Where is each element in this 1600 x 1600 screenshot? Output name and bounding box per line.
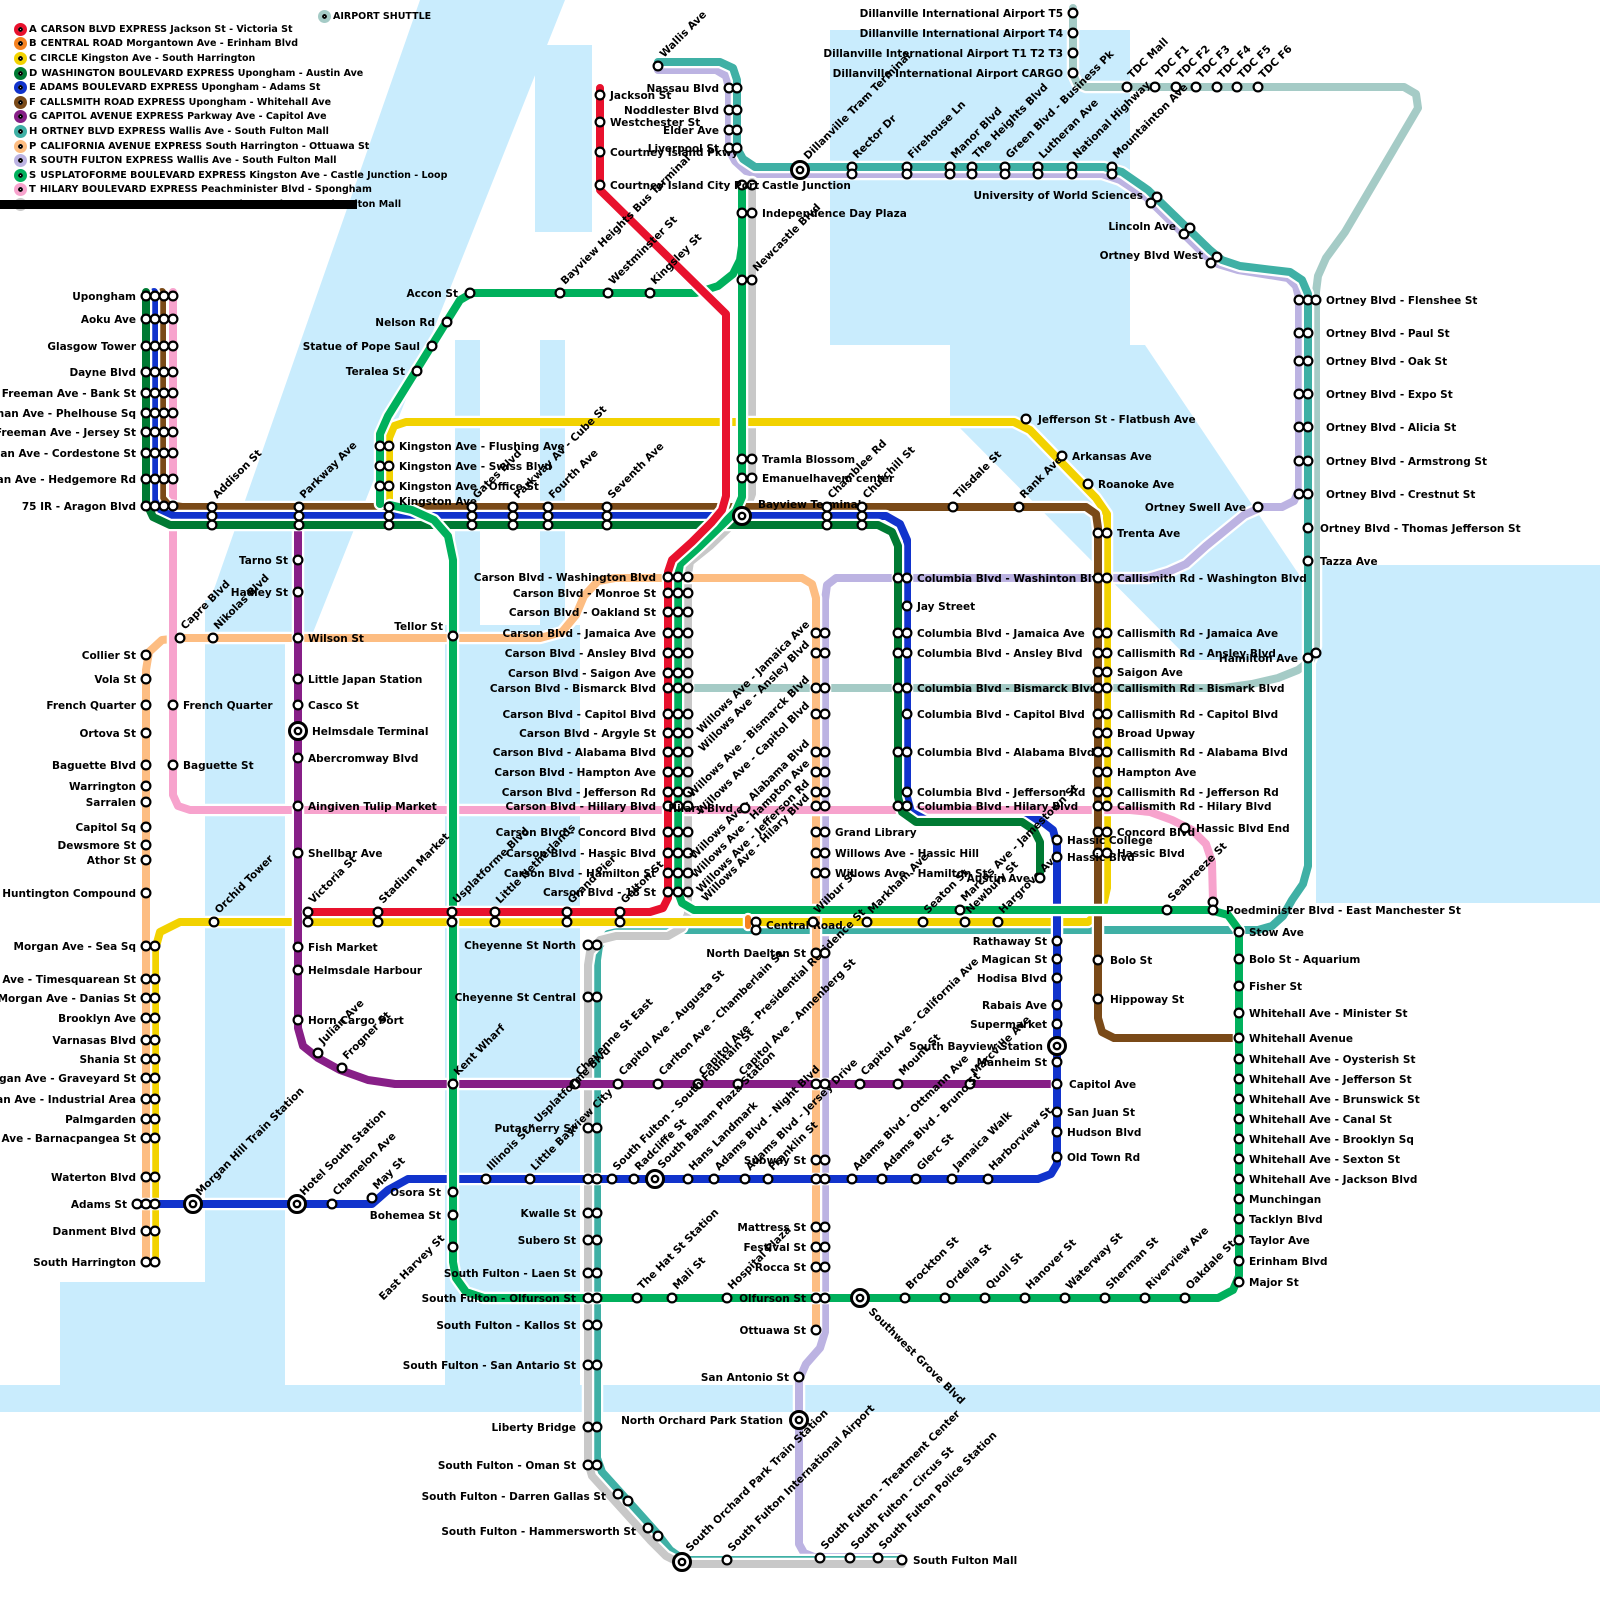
station-label-seventh-ave: Seventh Ave (606, 440, 667, 501)
station-south-fulton-oman-st[interactable]: South Fulton - Oman St (438, 1460, 602, 1472)
station-label-danment-blvd: Danment Blvd (53, 1226, 136, 1238)
station-whitehall-ave-jackson-blvd[interactable]: Whitehall Ave - Jackson Blvd (1235, 1174, 1418, 1186)
station-san-juan-st[interactable]: San Juan St (1053, 1107, 1135, 1119)
station-san-antonio-st[interactable]: San Antonio St (701, 1372, 804, 1384)
station-label-little-japan-station: Little Japan Station (308, 674, 422, 686)
station-label-whitehall-ave-jefferson-st: Whitehall Ave - Jefferson St (1249, 1074, 1412, 1086)
station-hassic-college[interactable]: Hassic College (1053, 835, 1153, 847)
station-label-tazza-ave: Tazza Ave (1320, 556, 1378, 568)
station-baguette-blvd[interactable]: Baguette Blvd (52, 760, 150, 772)
station-label-hospital-plaza: Hospital Plaza (726, 1224, 794, 1292)
station-south-fulton-hammersworth-st[interactable]: South Fulton - Hammersworth St (441, 1524, 662, 1541)
water (535, 45, 592, 232)
station-label-noddlester-blvd: Noddlester Blvd (624, 105, 719, 117)
station-kingston-ave-office-st[interactable]: Kingston Ave - Office St (376, 481, 539, 493)
station-saigon-ave[interactable]: Saigon Ave (1094, 667, 1183, 679)
station-shania-st[interactable]: Shania St (79, 1054, 159, 1066)
station-label-major-st: Major St (1249, 1277, 1299, 1289)
station-old-town-rd[interactable]: Old Town Rd (1053, 1152, 1141, 1164)
station-label-waterton-blvd: Waterton Blvd (51, 1172, 136, 1184)
station-callismith-rd-jamaica-ave[interactable]: Callismith Rd - Jamaica Ave (1094, 628, 1279, 640)
legend-bullet-icon-B (14, 37, 27, 50)
legend-item-S: SUSPLATOFORME BOULEVARD EXPRESS Kingston… (14, 168, 447, 183)
station-shellbar-ave[interactable]: Shellbar Ave (294, 848, 383, 860)
legend-item-C: CCIRCLE Kingston Ave - South Harrington (14, 51, 447, 66)
station-label-osora-st: Osora St (390, 1187, 441, 1199)
station-kingston-ave-swiss-blvd[interactable]: Kingston Ave - Swiss Blvd (376, 461, 552, 473)
station-dillanville-international-airport-cargo[interactable]: Dillanville International Airport CARGO (833, 68, 1078, 80)
legend-text-A: CARSON BLVD EXPRESS Jackson St - Victori… (41, 24, 293, 35)
station-label-whitehall-ave-sexton-st: Whitehall Ave - Sexton St (1249, 1154, 1400, 1166)
station-morgan-ave-industrial-area[interactable]: Morgan Ave - Industrial Area (0, 1094, 159, 1106)
station-label-south-orchard-park-train-station: South Orchard Park Train Station (684, 1407, 831, 1554)
station-adams-st[interactable]: Adams St (71, 1199, 160, 1211)
station-label-hippoway-st: Hippoway St (1110, 994, 1184, 1006)
station-label-carson-blvd-hillary-blvd: Carson Blvd - Hillary Blvd (505, 801, 656, 813)
station-willows-ave-hassic-hill[interactable]: Willows Ave - Hassic Hill (812, 848, 979, 860)
station-whitehall-ave-minister-st[interactable]: Whitehall Ave - Minister St (1235, 1008, 1408, 1020)
station-label-nelson-rd: Nelson Rd (375, 317, 435, 329)
station-label-freeman-ave-hedgemore-rd: Freeman Ave - Hedgemore Rd (0, 474, 136, 486)
metro-map-svg: UponghamAoku AveGlasgow TowerDayne BlvdF… (0, 0, 1600, 1600)
station-label-arkansas-ave: Arkansas Ave (1072, 451, 1152, 463)
station-label-saigon-ave: Saigon Ave (1117, 667, 1183, 679)
station-label-liverpool-st: Liverpool St (648, 143, 719, 155)
station-subway-st[interactable]: Subway St (744, 1155, 830, 1167)
station-label-columbia-blvd-ansley-blvd: Columbia Blvd - Ansley Blvd (917, 648, 1082, 660)
legend-item-D: DWASHINGTON BOULEVARD EXPRESS Upongham -… (14, 66, 447, 81)
station-label-harborview-st: Harborview St (987, 1105, 1055, 1173)
station-whitehall-ave-brooklyn-sq[interactable]: Whitehall Ave - Brooklyn Sq (1235, 1134, 1414, 1146)
station-elder-ave[interactable]: Elder Ave (663, 125, 741, 137)
station-morgan-ave-danias-st[interactable]: Morgan Ave - Danias St (0, 993, 159, 1005)
station-whitehall-ave-brunswick-st[interactable]: Whitehall Ave - Brunswick St (1235, 1094, 1420, 1106)
station-label-ortney-blvd-crestnut-st: Ortney Blvd - Crestnut St (1326, 489, 1475, 501)
station-label-carson-blvd-argyle-st: Carson Blvd - Argyle St (519, 728, 656, 740)
station-label-columbia-blvd-alabama-blvd: Columbia Blvd - Alabama Blvd (917, 747, 1094, 759)
legend-letter-E: E (29, 82, 36, 93)
station-label-ortney-blvd-expo-st: Ortney Blvd - Expo St (1326, 389, 1453, 401)
station-helmsdale-terminal[interactable]: Helmsdale Terminal (290, 723, 429, 740)
station-label-bolo-st: Bolo St (1110, 955, 1152, 967)
station-label-broad-upway: Broad Upway (1117, 728, 1195, 740)
legend-letter-F: F (29, 97, 36, 108)
station-subero-st[interactable]: Subero St (518, 1235, 602, 1247)
station-label-ortney-blvd-thomas-jefferson-st: Ortney Blvd - Thomas Jefferson St (1320, 523, 1521, 535)
station-whitehall-ave-jefferson-st[interactable]: Whitehall Ave - Jefferson St (1235, 1074, 1412, 1086)
station-south-fulton-san-antario-st[interactable]: South Fulton - San Antario St (403, 1360, 602, 1372)
station-label-freeman-ave-cordestone-st: Freeman Ave - Cordestone St (0, 448, 136, 460)
legend-item-A: ACARSON BLVD EXPRESS Jackson St - Victor… (14, 22, 447, 37)
legend-bullet-icon-E (14, 81, 27, 94)
legend-bullet-icon-A (14, 23, 27, 36)
station-label-jay-street: Jay Street (916, 601, 975, 613)
station-callismith-rd-bismark-blvd[interactable]: Callismith Rd - Bismark Blvd (1094, 683, 1285, 695)
legend-item-F: FCALLSMITH ROAD EXPRESS Upongham - White… (14, 95, 447, 110)
station-label-ortney-blvd-alicia-st: Ortney Blvd - Alicia St (1326, 422, 1456, 434)
station-label-callismith-rd-washington-blvd: Callismith Rd - Washington Blvd (1117, 573, 1307, 585)
station-callismith-rd-washington-blvd[interactable]: Callismith Rd - Washington Blvd (1094, 573, 1307, 585)
legend-bullet-icon-F (14, 96, 27, 109)
station-label-south-fulton-kallos-st: South Fulton - Kallos St (436, 1320, 576, 1332)
station-label-upongham: Upongham (72, 291, 136, 303)
station-label-columbia-blvd-bismarck-blvd: Columbia Blvd - Bismarck Blvd (917, 683, 1097, 695)
legend-item-H: HORTNEY BLVD EXPRESS Wallis Ave - South … (14, 124, 447, 139)
station-label-fisher-st: Fisher St (1249, 981, 1302, 993)
station-label-rathaway-st: Rathaway St (973, 936, 1047, 948)
station-label-south-fulton-hammersworth-st: South Fulton - Hammersworth St (441, 1526, 636, 1538)
station-callismith-rd-capitol-blvd[interactable]: Callismith Rd - Capitol Blvd (1094, 709, 1279, 721)
station-central-road[interactable]: Central Road (752, 918, 843, 935)
station-label-courtney-island-city-port: Courtney Island City Port (610, 180, 759, 192)
station-label-dewsmore-st: Dewsmore St (58, 840, 136, 852)
legend-item-E: EADAMS BOULEVARD EXPRESS Upongham - Adam… (14, 80, 447, 95)
station-label-75-ir-aragon-blvd: 75 IR - Aragon Blvd (22, 501, 136, 513)
station-morgan-ave-sea-sq[interactable]: Morgan Ave - Sea Sq (14, 941, 160, 953)
station-label-quoll-st: Quoll St (984, 1250, 1026, 1292)
legend-letter-B: B (29, 38, 37, 49)
station-label-capitol-ave: Capitol Ave (1069, 1079, 1136, 1091)
station-label-lincoln-ave: Lincoln Ave (1108, 221, 1176, 233)
station-dillanville-international-airport-t1-t2-t3[interactable]: Dillanville International Airport T1 T2 … (823, 48, 1077, 60)
station-label-shania-st: Shania St (79, 1054, 136, 1066)
station-label-stadium-market: Stadium Market (377, 831, 452, 906)
station-label-carson-blvd-saigon-ave: Carson Blvd - Saigon Ave (508, 668, 656, 680)
station-callismith-rd-alabama-blvd[interactable]: Callismith Rd - Alabama Blvd (1094, 747, 1288, 759)
station-label-whitehall-ave-jackson-blvd: Whitehall Ave - Jackson Blvd (1249, 1174, 1417, 1186)
station-courtney-island-city-port[interactable]: Courtney Island City Port (596, 180, 760, 192)
station-label-kwalle-st: Kwalle St (521, 1208, 576, 1220)
station-label-freeman-ave-jersey-st: Freeman Ave - Jersey St (0, 427, 136, 439)
station-label-tellor-st: Tellor St (394, 621, 443, 633)
station-label-hassic-college: Hassic College (1067, 835, 1153, 847)
station-columbia-blvd-capitol-blvd[interactable]: Columbia Blvd - Capitol Blvd (903, 709, 1085, 721)
station-label-carson-blvd-hampton-ave: Carson Blvd - Hampton Ave (494, 767, 656, 779)
station-little-japan-station[interactable]: Little Japan Station (294, 674, 423, 686)
station-label-whitehall-avenue: Whitehall Avenue (1249, 1033, 1353, 1045)
station-label-freeman-ave-bank-st: Freeman Ave - Bank St (2, 388, 136, 400)
legend-letter-R: R (29, 155, 37, 166)
station-label-french-quarter: French Quarter (183, 700, 273, 712)
station-bohemea-st[interactable]: Bohemea St (370, 1210, 458, 1222)
station-statue-of-pope-saul[interactable]: Statue of Pope Saul (303, 341, 437, 353)
station-collier-st[interactable]: Collier St (82, 650, 151, 662)
legend-letter-T: T (29, 184, 36, 195)
station-label-south-fulton-oman-st: South Fulton - Oman St (438, 1460, 576, 1472)
legend-bullet-icon-R (14, 154, 27, 167)
legend-item-airport-shuttle: AIRPORT SHUTTLE (318, 10, 431, 23)
station-tacklyn-blvd[interactable]: Tacklyn Blvd (1235, 1214, 1323, 1226)
station-hassic-blvd[interactable]: Hassic Blvd (1053, 852, 1135, 864)
station-label-carson-blvd-hassic-blvd: Carson Blvd - Hassic Blvd (506, 848, 656, 860)
station-south-bayview-station[interactable]: South Bayview Station (909, 1038, 1065, 1055)
station-label-chamblee-rd: Chamblee Rd (826, 438, 890, 502)
station-whitehall-avenue[interactable]: Whitehall Avenue (1235, 1033, 1353, 1045)
station-supermarket[interactable]: Supermarket (970, 1019, 1061, 1031)
station-label-callismith-rd-alabama-blvd: Callismith Rd - Alabama Blvd (1117, 747, 1288, 759)
station-label-columbia-blvd-washinton-blvd: Columbia Blvd - Washinton Blvd (917, 573, 1106, 585)
station-label-subway-st: Subway St (744, 1155, 806, 1167)
station-label-kingston-ave-swiss-blvd: Kingston Ave - Swiss Blvd (399, 461, 552, 473)
station-hippoway-st[interactable]: Hippoway St (1094, 994, 1185, 1006)
station-carson-blvd-argyle-st[interactable]: Carson Blvd - Argyle St (519, 728, 692, 740)
station-label-collier-st: Collier St (82, 650, 136, 662)
station-kingston-ave-flushing-ave[interactable]: Kingston Ave - Flushing Ave (376, 441, 565, 453)
station-ortney-swell-ave[interactable]: Ortney Swell Ave (1145, 502, 1263, 514)
station-label-hilary-blvd: Hilary Blvd (668, 803, 733, 815)
station-label-carson-blvd-monroe-st: Carson Blvd - Monroe St (513, 588, 656, 600)
station-aingiven-tulip-market[interactable]: Aingiven Tulip Market (294, 801, 437, 813)
airport-shuttle-bullet-icon (318, 10, 331, 23)
station-label-ortney-blvd-flenshee-st: Ortney Blvd - Flenshee St (1326, 295, 1477, 307)
legend-bullet-icon-G (14, 110, 27, 123)
station-south-fulton-mall[interactable]: South Fulton Mall (898, 1555, 1018, 1567)
station-label-ortney-blvd-armstrong-st: Ortney Blvd - Armstrong St (1326, 456, 1487, 468)
station-label-stow-ave: Stow Ave (1249, 927, 1304, 939)
station-willows-ave-ansley-blvd[interactable]: Willows Ave - Ansley Blvd (696, 639, 829, 755)
station-label-ortney-blvd-west: Ortney Blvd West (1100, 250, 1203, 262)
station-label-south-fulton-mall: South Fulton Mall (913, 1555, 1017, 1567)
station-liverpool-st[interactable]: Liverpool St (648, 143, 742, 155)
station-trenta-ave[interactable]: Trenta Ave (1094, 528, 1181, 540)
station-label-bayview-terminal: Bayview Terminal (758, 499, 861, 511)
station-huntington-compound[interactable]: Huntington Compound (2, 888, 150, 900)
legend-text-H: ORTNEY BLVD EXPRESS Wallis Ave - South F… (41, 126, 329, 137)
station-kwalle-st[interactable]: Kwalle St (521, 1208, 602, 1220)
station-morgan-ave-timesquarean-st[interactable]: Morgan Ave - Timesquarean St (0, 974, 159, 986)
station-label-shellbar-ave: Shellbar Ave (308, 848, 383, 860)
station-label-statue-of-pope-saul: Statue of Pope Saul (303, 341, 420, 353)
station-75-ir-aragon-blvd[interactable]: 75 IR - Aragon Blvd (22, 501, 178, 513)
station-label-carson-blvd-jamaica-ave: Carson Blvd - Jamaica Ave (503, 628, 657, 640)
station-label-carson-blvd-bismarck-blvd: Carson Blvd - Bismarck Blvd (490, 683, 656, 695)
legend-text-S: USPLATOFORME BOULEVARD EXPRESS Kingston … (40, 170, 447, 181)
station-label-south-fulton-laen-st: South Fulton - Laen St (444, 1268, 576, 1280)
legend-item-R: RSOUTH FULTON EXPRESS Wallis Ave - South… (14, 153, 447, 168)
station-label-callismith-rd-capitol-blvd: Callismith Rd - Capitol Blvd (1117, 709, 1278, 721)
station-morgan-ave-barnacpangea-st[interactable]: Morgan Ave - Barnacpangea St (0, 1133, 159, 1145)
station-label-poedminister-blvd-east-manchester-st: Poedminister Blvd - East Manchester St (1226, 905, 1461, 917)
station-jefferson-st-flatbush-ave[interactable]: Jefferson St - Flatbush Ave (1022, 414, 1196, 426)
station-hudson-blvd[interactable]: Hudson Blvd (1053, 1127, 1142, 1139)
station-ortney-blvd-armstrong-st[interactable]: Ortney Blvd - Armstrong St (1295, 456, 1487, 468)
station-abercromway-blvd[interactable]: Abercromway Blvd (294, 753, 419, 765)
station-whitehall-ave-sexton-st[interactable]: Whitehall Ave - Sexton St (1235, 1154, 1400, 1166)
station-label-morgan-ave-timesquarean-st: Morgan Ave - Timesquarean St (0, 974, 136, 986)
station-label-fish-market: Fish Market (308, 942, 378, 954)
station-french-quarter[interactable]: French Quarter (169, 700, 274, 712)
station-label-jamaica-walk: Jamaica Walk (950, 1108, 1015, 1173)
station-label-morgan-ave-barnacpangea-st: Morgan Ave - Barnacpangea St (0, 1133, 136, 1145)
station-hassic-blvd-end[interactable]: Hassic Blvd End (1181, 823, 1290, 835)
station-label-ortney-blvd-oak-st: Ortney Blvd - Oak St (1326, 356, 1447, 368)
station-ottuawa-st[interactable]: Ottuawa St (739, 1325, 820, 1337)
station-label-wallis-ave: Wallis Ave (658, 9, 709, 60)
legend-letter-A: A (29, 24, 37, 35)
station-columbia-blvd-bismarck-blvd[interactable]: Columbia Blvd - Bismarck Blvd (894, 683, 1098, 695)
station-label-dillanville-international-airport-t1-t2-t3: Dillanville International Airport T1 T2 … (823, 48, 1063, 60)
station-label-munchingan: Munchingan (1249, 1194, 1321, 1206)
legend-bullet-icon-S (14, 169, 27, 182)
station-label-accon-st: Accon St (406, 288, 458, 300)
legend-item-B: BCENTRAL ROAD Morgantown Ave - Erinham B… (14, 37, 447, 52)
station-label-huntington-compound: Huntington Compound (2, 888, 136, 900)
station-label-freeman-ave-phelhouse-sq: Freeman Ave - Phelhouse Sq (0, 408, 136, 420)
station-columbia-blvd-jamaica-ave[interactable]: Columbia Blvd - Jamaica Ave (894, 628, 1085, 640)
station-label-dillanville-international-airport-t5: Dillanville International Airport T5 (860, 8, 1063, 20)
station-label-whitehall-ave-canal-st: Whitehall Ave - Canal St (1249, 1114, 1392, 1126)
station-label-baguette-st: Baguette St (183, 760, 254, 772)
legend-bullet-icon-T (14, 183, 27, 196)
station-label-helmsdale-harbour: Helmsdale Harbour (308, 965, 423, 977)
station-willows-ave-hamilton-st[interactable]: Willows Ave - Hamilton St (812, 868, 988, 880)
station-french-quarter[interactable]: French Quarter (46, 700, 150, 712)
station-dewsmore-st[interactable]: Dewsmore St (58, 840, 151, 852)
station-label-nassau-blvd: Nassau Blvd (646, 83, 719, 95)
legend-text-G: CAPITOL AVENUE EXPRESS Parkway Ave - Cap… (41, 111, 326, 122)
station-warrington[interactable]: Warrington (69, 781, 150, 793)
station-hodisa-blvd[interactable]: Hodisa Blvd (977, 973, 1061, 985)
station-label-tacklyn-blvd: Tacklyn Blvd (1249, 1214, 1323, 1226)
station-magican-st[interactable]: Magican St (981, 954, 1061, 966)
station-label-teralea-st: Teralea St (346, 366, 405, 378)
legend-text-F: CALLSMITH ROAD EXPRESS Upongham - Whiteh… (40, 97, 331, 108)
station-capitol-ave[interactable]: Capitol Ave (1053, 1079, 1137, 1091)
station-label-adams-st: Adams St (71, 1199, 127, 1211)
station-label-helmsdale-terminal: Helmsdale Terminal (312, 726, 428, 738)
legend-letter-D: D (29, 68, 37, 79)
station-helmsdale-harbour[interactable]: Helmsdale Harbour (294, 965, 423, 977)
station-label-kingston-ave-flushing-ave: Kingston Ave - Flushing Ave (399, 441, 565, 453)
legend-text-T: HILARY BOULEVARD EXPRESS Peachminister B… (40, 184, 372, 195)
water (205, 600, 285, 1390)
station-munchingan[interactable]: Munchingan (1235, 1194, 1322, 1206)
station-taylor-ave[interactable]: Taylor Ave (1235, 1235, 1310, 1247)
station-label-castle-junction: Castle Junction (762, 180, 851, 192)
station-rathaway-st[interactable]: Rathaway St (973, 936, 1062, 948)
station-palmgarden[interactable]: Palmgarden (65, 1114, 159, 1126)
station-olfurson-st[interactable]: Olfurson St (739, 1293, 829, 1305)
station-label-brooklyn-ave: Brooklyn Ave (58, 1013, 136, 1025)
station-label-south-fulton-police-station: South Fulton Police Station (877, 1429, 1000, 1552)
station-label-mattress-st: Mattress St (737, 1222, 806, 1234)
station-label-morgan-ave-sea-sq: Morgan Ave - Sea Sq (14, 941, 136, 953)
station-whitehall-ave-oysterish-st[interactable]: Whitehall Ave - Oysterish St (1235, 1054, 1416, 1066)
station-bolo-st-aquarium[interactable]: Bolo St - Aquarium (1235, 954, 1361, 966)
station-jay-street[interactable]: Jay Street (903, 601, 976, 613)
legend-letter-P: P (29, 141, 36, 152)
station-aoku-ave[interactable]: Aoku Ave (81, 314, 178, 326)
station-columbia-blvd-washinton-blvd[interactable]: Columbia Blvd - Washinton Blvd (894, 573, 1106, 585)
station-label-hudson-blvd: Hudson Blvd (1067, 1127, 1141, 1139)
legend-text-R: SOUTH FULTON EXPRESS Wallis Ave - South … (41, 155, 337, 166)
station-north-orchard-park-station[interactable]: North Orchard Park Station (621, 1412, 807, 1429)
station-label-south-fulton-san-antario-st: South Fulton - San Antario St (403, 1360, 576, 1372)
legend-item-G: GCAPITOL AVENUE EXPRESS Parkway Ave - Ca… (14, 110, 447, 125)
station-label-abercromway-blvd: Abercromway Blvd (308, 753, 418, 765)
station-label-jefferson-st-flatbush-ave: Jefferson St - Flatbush Ave (1037, 414, 1196, 426)
station-label-tramla-blossom: Tramla Blossom (762, 454, 855, 466)
station-label-san-antonio-st: San Antonio St (701, 1372, 789, 1384)
legend-letter-G: G (29, 111, 37, 122)
station-label-ortney-blvd-paul-st: Ortney Blvd - Paul St (1326, 328, 1450, 340)
station-label-willows-ave-hamilton-st: Willows Ave - Hamilton St (835, 868, 988, 880)
station-label-emanuelhavem-center: Emanuelhavem center (762, 473, 895, 485)
station-label-whitehall-ave-minister-st: Whitehall Ave - Minister St (1249, 1008, 1408, 1020)
station-ortney-blvd-thomas-jefferson-st[interactable]: Ortney Blvd - Thomas Jefferson St (1304, 523, 1521, 535)
station-columbia-blvd-alabama-blvd[interactable]: Columbia Blvd - Alabama Blvd (894, 747, 1095, 759)
station-label-magican-st: Magican St (981, 954, 1047, 966)
station-south-fulton-darren-gallas-st[interactable]: South Fulton - Darren Gallas St (422, 1490, 633, 1506)
station-label-elder-ave: Elder Ave (663, 125, 719, 137)
station-columbia-blvd-ansley-blvd[interactable]: Columbia Blvd - Ansley Blvd (894, 648, 1083, 660)
station-label-columbia-blvd-jamaica-ave: Columbia Blvd - Jamaica Ave (917, 628, 1085, 640)
station-rabais-ave[interactable]: Rabais Ave (982, 1000, 1061, 1012)
station-south-fulton-olfurson-st[interactable]: South Fulton - Olfurson St (422, 1293, 602, 1305)
station-label-wilson-st: Wilson St (308, 633, 364, 645)
station-callismith-rd-hilary-blvd[interactable]: Callismith Rd - Hilary Blvd (1094, 801, 1272, 813)
station-label-taylor-ave: Taylor Ave (1249, 1235, 1310, 1247)
transit-map-page: ACARSON BLVD EXPRESS Jackson St - Victor… (0, 0, 1600, 1600)
station-capitol-sq[interactable]: Capitol Sq (76, 822, 151, 834)
station-label-whitehall-ave-brooklyn-sq: Whitehall Ave - Brooklyn Sq (1249, 1134, 1414, 1146)
station-label-athor-st: Athor St (87, 855, 136, 867)
station-label-south-fulton-olfurson-st: South Fulton - Olfurson St (422, 1293, 576, 1305)
station-label-trenta-ave: Trenta Ave (1117, 528, 1180, 540)
station-dillanville-international-airport-t5[interactable]: Dillanville International Airport T5 (860, 8, 1078, 20)
station-label-carson-blvd-ansley-blvd: Carson Blvd - Ansley Blvd (505, 648, 656, 660)
station-morgan-ave-graveyard-st[interactable]: Morgan Ave - Graveyard St (0, 1073, 159, 1085)
legend-text-D: WASHINGTON BOULEVARD EXPRESS Upongham - … (41, 68, 363, 79)
station-roanoke-ave[interactable]: Roanoke Ave (1084, 479, 1175, 491)
station-label-vola-st: Vola St (94, 674, 136, 686)
station-cheyenne-st-north[interactable]: Cheyenne St North (464, 940, 601, 952)
station-arkansas-ave[interactable]: Arkansas Ave (1058, 451, 1152, 463)
station-label-liberty-bridge: Liberty Bridge (491, 1422, 576, 1434)
station-label-dillanville-international-airport-t4: Dillanville International Airport T4 (860, 28, 1063, 40)
station-station[interactable] (812, 1175, 830, 1184)
station-label-casco-st: Casco St (308, 700, 359, 712)
station-whitehall-ave-canal-st[interactable]: Whitehall Ave - Canal St (1235, 1114, 1392, 1126)
station-label-ottuawa-st: Ottuawa St (739, 1325, 806, 1337)
station-erinham-blvd[interactable]: Erinham Blvd (1235, 1256, 1328, 1268)
legend-text-B: CENTRAL ROAD Morgantown Ave - Erinham Bl… (41, 38, 298, 49)
station-fish-market[interactable]: Fish Market (294, 942, 378, 954)
station-dillanville-international-airport-t4[interactable]: Dillanville International Airport T4 (860, 28, 1078, 40)
legend-bullet-icon-P (14, 140, 27, 153)
station-label-dayne-blvd: Dayne Blvd (69, 367, 136, 379)
station-label-south-fulton-darren-gallas-st: South Fulton - Darren Gallas St (422, 1491, 606, 1503)
station-label-french-quarter: French Quarter (46, 700, 136, 712)
station-label-independence-day-plaza: Independence Day Plaza (762, 208, 907, 220)
station-baguette-st[interactable]: Baguette St (169, 760, 254, 772)
station-label-hamilton-ave: Hamilton Ave (1219, 653, 1298, 665)
station-label-carson-blvd-washington-blvd: Carson Blvd - Washington Blvd (474, 572, 656, 584)
station-label-carson-blvd-capitol-blvd: Carson Blvd - Capitol Blvd (502, 709, 656, 721)
station-label-old-town-rd: Old Town Rd (1067, 1152, 1140, 1164)
station-label-tilsdale-st: Tilsdale St (952, 449, 1004, 501)
station-manheim-st[interactable]: Manheim St (977, 1057, 1062, 1069)
station-label-whitehall-ave-brunswick-st: Whitehall Ave - Brunswick St (1249, 1094, 1420, 1106)
station-label-hampton-ave: Hampton Ave (1117, 767, 1196, 779)
station-station[interactable] (584, 1175, 602, 1184)
station-label-putacherry-st: Putacherry St (494, 1123, 576, 1135)
station-label-kingston-ave-office-st: Kingston Ave - Office St (399, 481, 539, 493)
station-callismith-rd-jefferson-rd[interactable]: Callismith Rd - Jefferson Rd (1094, 787, 1279, 799)
station-label-ortova-st: Ortova St (79, 728, 136, 740)
station-emanuelhavem-center[interactable]: Emanuelhavem center (738, 473, 895, 485)
station-south-fulton-police-station[interactable]: South Fulton Police Station (874, 1429, 1000, 1562)
